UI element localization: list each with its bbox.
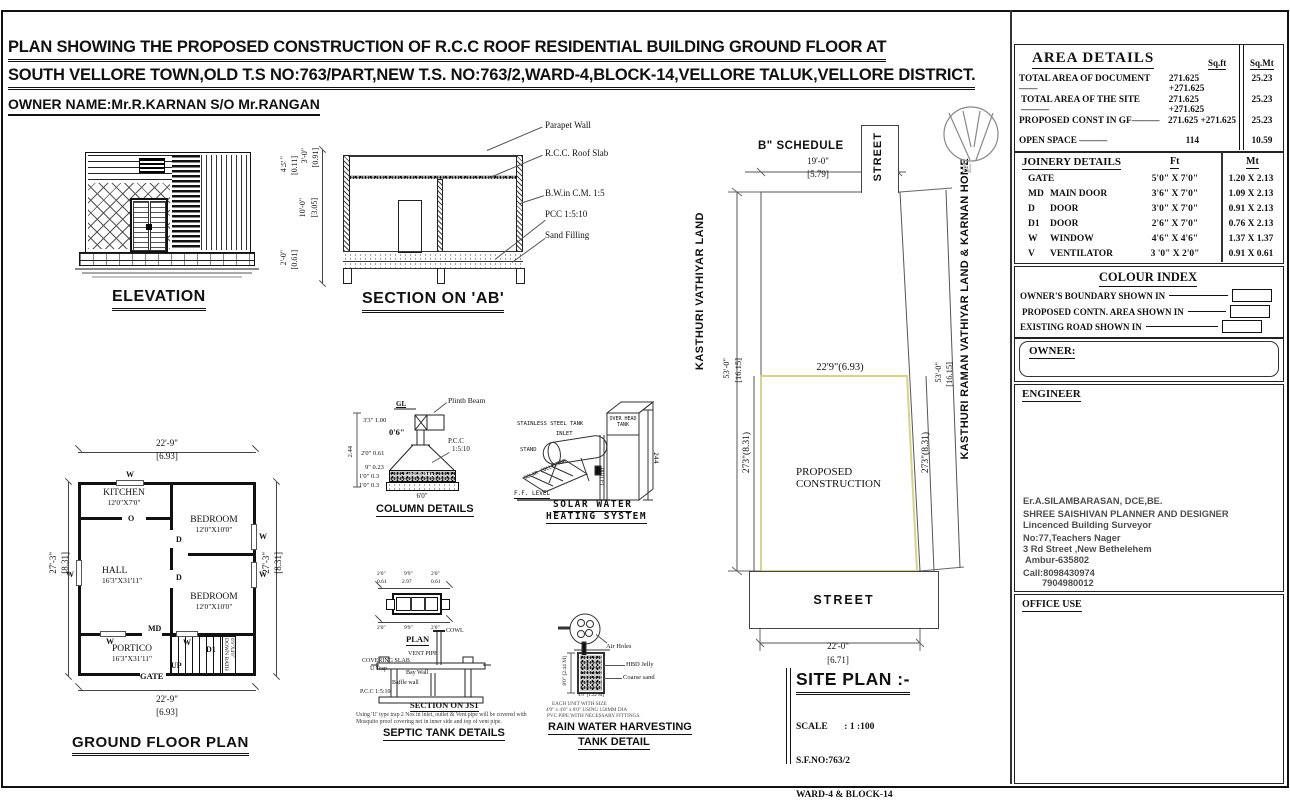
column-plinth-label: Plinth Beam [448, 396, 485, 405]
joinery-row-mt: 0.91 X 0.61 [1224, 249, 1278, 259]
ground-floor-title: GROUND FLOOR PLAN [72, 734, 249, 756]
joinery-row-code: D [1028, 204, 1035, 214]
dim-label: 2'0" [377, 571, 386, 577]
plan-wall [188, 553, 256, 556]
land-label-right: KASTHURI RAMAN VATHIYAR LAND & KARNAN HO… [959, 158, 971, 459]
area-row-sqmt: 25.23 [1244, 116, 1280, 126]
plan-window [116, 480, 144, 486]
plan-wall [170, 548, 173, 570]
area-row-sqmt: 25.23 [1244, 95, 1280, 105]
joinery-row-ft: 3 '0" X 2'0" [1135, 249, 1215, 259]
section-parapet-top [343, 155, 523, 157]
septic-plan-inlet-box [386, 599, 395, 610]
dim-label: 2.97 [402, 579, 412, 585]
dim-label: 0'6" [389, 427, 405, 437]
joinery-row-ft: 4'6" X 4'6" [1135, 234, 1215, 244]
dim-label: 22'-9" [117, 694, 217, 704]
plan-wall [146, 517, 173, 520]
joinery-row-name: DOOR [1050, 219, 1079, 229]
engineer-line: Er.A.SILAMBARASAN, DCE,BE. [1023, 496, 1162, 506]
site-plan-detail-line: S.F.NO:763/2 [796, 756, 910, 767]
solar-stand-label: STAND [520, 447, 537, 453]
leader-line [604, 678, 622, 679]
joinery-row-ft: 3'0" X 7'0" [1135, 204, 1215, 214]
label-door: D [176, 535, 182, 544]
label-window: W [183, 638, 191, 647]
label-door: D [176, 573, 182, 582]
dim-label: 22'9"(6.93) [795, 362, 885, 373]
area-row: TOTAL AREA OF DOCUMENT ——271.625 +271.62… [1019, 74, 1236, 94]
area-row: PROPOSED CONST IN GF———271.625 +271.625 [1019, 116, 1236, 126]
rainwater-title-1: RAIN WATER HARVESTING [548, 721, 692, 735]
label-gate: GATE [140, 671, 163, 681]
section-floor-line [343, 251, 523, 252]
owner-name-line: OWNER NAME:Mr.R.KARNAN S/O Mr.RANGAN [8, 96, 320, 116]
dim-label: [16.15] [733, 358, 743, 383]
colour-index-heading: COLOUR INDEX [1014, 270, 1282, 287]
land-label-left: KASTHURI VATHIYAR LAND [694, 212, 706, 370]
colour-swatch [1230, 305, 1270, 318]
dim-line [322, 150, 323, 283]
plan-window [176, 631, 198, 637]
joinery-row-mt: 0.91 X 2.13 [1224, 204, 1278, 214]
north-arrow-icon [935, 100, 1015, 180]
septic-section-title: SECTION ON JS1 [410, 700, 479, 712]
dim-label: 273"(8.31) [921, 432, 931, 473]
elevation-door-leaf-right [150, 201, 166, 251]
dim-line [276, 482, 277, 676]
septic-plan-outlet-box [441, 599, 450, 610]
elevation-plinth-brick [79, 252, 255, 266]
rainwater-note-3: PVC PIPE WITH NECESSARY FITTINGS. [547, 713, 641, 719]
dim-line [68, 482, 69, 676]
joinery-row-name: MAIN DOOR [1050, 189, 1107, 199]
dim-label: 2.44 [347, 446, 354, 457]
septic-plan-divider [410, 597, 412, 611]
section-label-parapet: Parapet Wall [545, 120, 591, 130]
dim-label: 4½" [279, 156, 288, 172]
dim-label: 3'3" 1.00 [363, 417, 386, 424]
colour-swatch [1222, 320, 1262, 333]
street-bottom-label: STREET [813, 593, 874, 607]
area-row-sqmt: 25.23 [1244, 74, 1280, 84]
dim-label: 22'-0" [793, 641, 883, 651]
column-gl-label: GL [396, 400, 406, 408]
plan-window [251, 524, 257, 550]
ground-shadow-line [92, 276, 242, 278]
dim-label: [0.11] [290, 156, 299, 175]
proposed-construction-label: PROPOSED [796, 466, 852, 478]
label-up: UP [171, 661, 182, 670]
plan-window [76, 560, 82, 586]
site-plan-heading: SITE PLAN :- [796, 669, 910, 695]
section-footing-right [516, 268, 525, 284]
area-col-sqft: Sq.ft [1208, 58, 1226, 70]
engineer-heading: ENGINEER [1022, 388, 1081, 402]
dim-label: [8.31] [273, 552, 283, 574]
area-col-sqmt: Sq.Mt [1250, 58, 1274, 70]
joinery-row-mt: 0.76 X 2.13 [1224, 219, 1278, 229]
section-pcc-band [343, 262, 523, 269]
plan-wall [170, 588, 173, 633]
joinery-row-code: MD [1028, 189, 1044, 199]
solar-sst-label: STAINLESS STEEL TANK [517, 421, 583, 427]
septic-plan-inner [396, 597, 438, 611]
dim-label: [16.15] [944, 362, 954, 387]
label-window: W [259, 532, 267, 541]
solar-ff-level-label: F.F. LEVEL [514, 490, 550, 499]
dim-label: 2'0" 0.61 [361, 450, 384, 457]
septic-utrap-label: U Trap [370, 666, 387, 672]
engineer-line: 7904980012 [1042, 578, 1094, 588]
colour-index-item: EXISTING ROAD SHOWN IN [1020, 320, 1262, 333]
joinery-row-name: VENTILATOR [1050, 249, 1113, 259]
room-hall: HALL16'3"X31'11" [102, 566, 142, 585]
dim-label: 244 [652, 452, 660, 464]
dim-label: 19'-0" [788, 156, 848, 166]
dim-label: 27'-3" [261, 552, 271, 574]
dim-label: 0.61 [431, 579, 441, 585]
section-footing-middle [437, 268, 445, 284]
section-title: SECTION ON 'AB' [362, 290, 504, 313]
leader-line [604, 665, 625, 666]
dim-label: 9" 0.23 [365, 464, 384, 471]
owner-heading: OWNER: [1029, 345, 1075, 359]
section-wall-middle [437, 179, 443, 252]
plan-window [251, 562, 257, 588]
joinery-divider [1221, 152, 1223, 262]
dim-label: [0.91] [311, 148, 320, 167]
dim-label: 2'-0" [279, 250, 288, 265]
dim-label: [8.31] [60, 552, 70, 574]
office-use-heading: OFFICE USE [1022, 599, 1082, 612]
column-sand-label: Sand Filling [404, 472, 434, 478]
engineer-line: Call:8098430974 [1023, 568, 1095, 578]
plan-wall [78, 673, 142, 676]
solar-outlet-label: OUTLET [598, 468, 604, 486]
elevation-hatch-vertical [201, 155, 247, 250]
rainwater-airholes-label: Air Holes [606, 643, 631, 650]
b-schedule-label: B" SCHEDULE [758, 140, 844, 152]
septic-cover-label: COVERING SLAB [362, 658, 410, 664]
joinery-col-mt: Mt [1246, 156, 1259, 169]
solar-overhead-tank-label: TANK [608, 422, 638, 428]
dim-label: 1'0" 0.3 [359, 473, 379, 480]
joinery-row-name: DOOR [1050, 204, 1079, 214]
label-main-door: MD [148, 624, 161, 633]
room-kitchen: KITCHEN12'0"X7'0" [92, 488, 156, 507]
site-plan-rule [786, 668, 791, 764]
dim-line [78, 690, 256, 691]
title-line-1: PLAN SHOWING THE PROPOSED CONSTRUCTION O… [8, 38, 886, 62]
north-label: N [962, 160, 972, 176]
joinery-row-ft: 3'6" X 7'0" [1135, 189, 1215, 199]
site-plan-details: SCALE : 1 :100 S.F.NO:763/2 WARD-4 & BLO… [796, 700, 910, 810]
area-row: OPEN SPACE ———114 [1019, 136, 1199, 146]
colour-swatch [1232, 289, 1272, 302]
joinery-col-ft: Ft [1170, 156, 1179, 169]
ground-shadow-line [82, 272, 252, 274]
engineer-line: Ambur-635802 [1025, 555, 1089, 565]
dim-label: 53'-0" [933, 362, 943, 383]
joinery-row-code: D1 [1028, 219, 1040, 229]
dim-line [378, 622, 450, 623]
column-details-title: COLUMN DETAILS [376, 503, 474, 517]
engineer-line: No:77,Teachers Nager [1023, 533, 1121, 543]
section-wall-left [343, 155, 350, 252]
ground-shadow-line [75, 268, 259, 270]
dim-label: 27'-3" [48, 552, 58, 574]
septic-baywall-label: Bay Wall [406, 670, 428, 676]
dim-label: [6.93] [117, 707, 217, 717]
drawing-sheet: PLAN SHOWING THE PROPOSED CONSTRUCTION O… [0, 0, 1290, 810]
section-footing-left [343, 268, 352, 284]
proposed-construction-label: CONSTRUCTION [796, 478, 881, 490]
joinery-row-mt: 1.09 X 2.13 [1224, 189, 1278, 199]
engineer-line: 3 Rd Street ,New Bethelehem [1023, 544, 1152, 554]
room-bedroom-1: BEDROOM12'0"X10'0" [178, 515, 250, 534]
label-door-d1: D1 [206, 645, 216, 654]
area-details-heading: AREA DETAILS [1032, 50, 1154, 69]
colour-index-item: OWNER'S BOUNDARY SHOWN IN [1020, 289, 1272, 302]
section-label-bw: B.W.in C.M. 1:5 [545, 188, 605, 198]
dim-label: 273"(8.31) [742, 432, 752, 473]
dim-label: [6.93] [117, 451, 217, 461]
room-portico: PORTICO16'3"X31'11" [92, 644, 172, 663]
dim-label: [6.71] [793, 655, 883, 665]
dim-label: [0.61] [290, 250, 299, 269]
septic-title: SEPTIC TANK DETAILS [383, 727, 505, 741]
joinery-row-ft: 2'6" X 7'0" [1135, 219, 1215, 229]
colour-index-item: PROPOSED CONTN. AREA SHOWN IN [1022, 305, 1270, 318]
septic-cowl-label: COWL [446, 628, 464, 634]
dim-label: [5.79] [788, 169, 848, 179]
site-plan-detail-line: WARD-4 & BLOCK-14 [796, 790, 910, 801]
joinery-row-ft: 5'0" X 7'0" [1135, 174, 1215, 184]
engineer-line: Lincenced Building Surveyor [1023, 520, 1152, 530]
area-row-sqmt: 10.59 [1244, 136, 1280, 146]
septic-note-2: Mosquito proof covering net in inner sid… [356, 719, 502, 725]
joinery-row-mt: 1.20 X 2.13 [1224, 174, 1278, 184]
rainwater-sand-label: Coarse sand [623, 674, 655, 681]
area-row: TOTAL AREA OF THE SITE ———271.625 +271.6… [1021, 95, 1236, 115]
room-bath-size: 6'9"X4'0" [229, 638, 234, 658]
dim-label: 2'0" [431, 571, 440, 577]
street-top-label: STREET [872, 132, 884, 181]
section-door-opening [398, 200, 422, 253]
dim-label: 22'-9" [117, 438, 217, 448]
solar-inlet-label: INLET [556, 431, 573, 437]
label-window: W [106, 637, 114, 646]
dim-label: 6'0" [406, 492, 438, 500]
dim-label: 4'0" [1.22 M] [574, 693, 608, 698]
septic-vent-label: VENT PIPE [408, 651, 438, 657]
plan-wall [78, 517, 122, 520]
joinery-heading: JOINERY DETAILS [1022, 156, 1121, 170]
joinery-row-code: V [1028, 249, 1035, 259]
plan-wall [170, 482, 173, 530]
label-opening: O [128, 514, 134, 523]
joinery-row-name: WINDOW [1050, 234, 1094, 244]
label-window: W [126, 470, 134, 479]
elevation-vent-strip [139, 158, 165, 173]
section-label-pcc: PCC 1:5:10 [545, 209, 587, 219]
elevation-title: ELEVATION [112, 288, 206, 311]
elevation-hatch-louver [172, 155, 200, 250]
office-use-box [1014, 594, 1284, 784]
septic-plan-divider [424, 597, 426, 611]
joinery-row-mt: 1.37 X 1.37 [1224, 234, 1278, 244]
room-bedroom-2: BEDROOM12'0"X10'0" [178, 592, 250, 611]
solar-title-2: HEATING SYSTEM [546, 511, 647, 524]
rainwater-fill [580, 655, 602, 691]
dim-line [378, 588, 450, 589]
septic-baffle-label: Baffle wall [392, 680, 419, 686]
rainwater-title-2: TANK DETAIL [578, 736, 650, 750]
joinery-row-code: W [1028, 234, 1038, 244]
elevation-door-handle [146, 224, 152, 230]
dim-label: 10'-0" [298, 198, 307, 217]
rainwater-jelly-label: HBD Jelly [626, 661, 654, 668]
septic-pcc-label: P.C.C 1:5:10 [360, 689, 391, 695]
engineer-line: SHREE SAISHIVAN PLANNER AND DESIGNER [1023, 509, 1229, 519]
column-pcc-label: 1:5:10 [452, 445, 470, 453]
title-line-2: SOUTH VELLORE TOWN,OLD T.S NO:763/PART,N… [8, 66, 975, 90]
septic-note-1: Using 'U' type trap 2 Nos in inlet, outl… [356, 712, 527, 718]
section-label-roofslab: R.C.C. Roof Slab [545, 148, 608, 158]
dim-label: 1'0" 0.3 [359, 482, 379, 489]
column-pcc-label: P.C.C [448, 437, 464, 445]
dim-label: 9'9" [404, 571, 413, 577]
dim-label: 8'0" [2.44 M] [562, 656, 568, 686]
joinery-row-name: GATE [1028, 174, 1054, 184]
dim-label: 3'-0" [300, 148, 309, 163]
plan-wall [78, 482, 256, 485]
site-plan-detail-line: SCALE : 1 :100 [796, 722, 910, 733]
section-roof-slab [343, 175, 523, 179]
section-label-sand: Sand Filling [545, 230, 589, 240]
column-sand-band [386, 482, 459, 491]
dim-label: 53'-0" [721, 358, 731, 379]
dim-label: [3.05] [310, 198, 319, 217]
street-bottom-box: STREET [749, 571, 939, 629]
